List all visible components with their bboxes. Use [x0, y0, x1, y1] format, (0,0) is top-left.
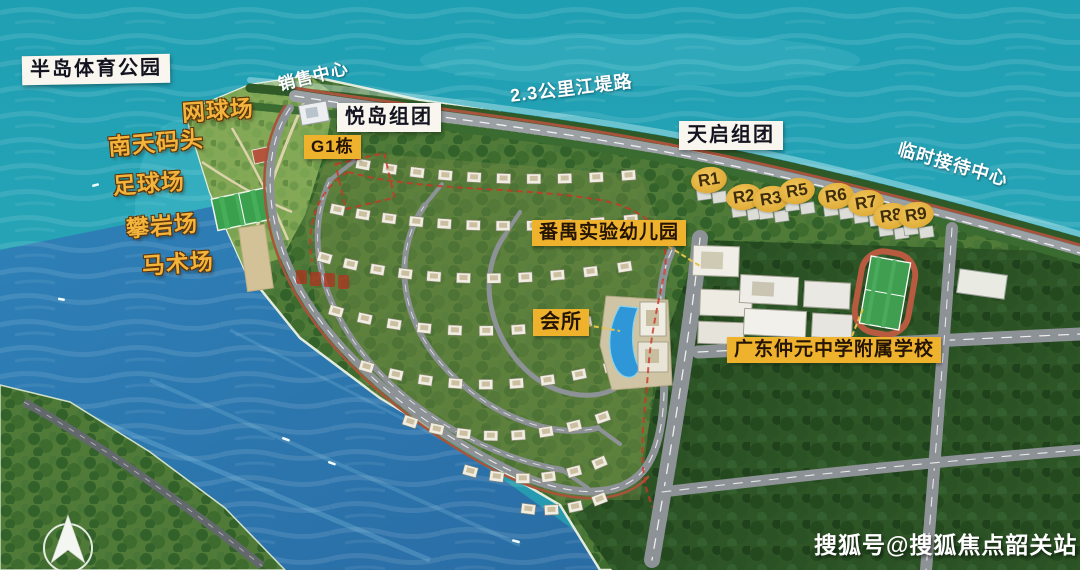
- label-peninsula-sports-park: 半岛体育公园: [22, 54, 170, 86]
- kindergarten-building: [692, 245, 739, 277]
- master-plan-screenshot: 半岛体育公园 网球场 南天码头 足球场 攀岩场 马术场 销售中心 悦岛组团 G1…: [0, 0, 1080, 570]
- label-school: 广东仲元中学附属学校: [727, 337, 941, 363]
- label-equestrian-field: 马术场: [141, 248, 215, 279]
- label-football-field: 足球场: [112, 168, 186, 199]
- label-tennis-court: 网球场: [181, 95, 255, 126]
- label-clubhouse: 会所: [533, 309, 589, 336]
- label-tianqi-group: 天启组团: [679, 121, 783, 150]
- label-yuedao-group: 悦岛组团: [337, 103, 441, 132]
- label-g1-building: G1栋: [304, 135, 361, 159]
- label-kindergarten: 番禺实验幼儿园: [532, 220, 686, 246]
- sales-center-building: [298, 101, 329, 126]
- clubhouse-complex: [600, 296, 672, 390]
- watermark-sohu: 搜狐号@搜狐焦点韶关站: [814, 526, 1077, 560]
